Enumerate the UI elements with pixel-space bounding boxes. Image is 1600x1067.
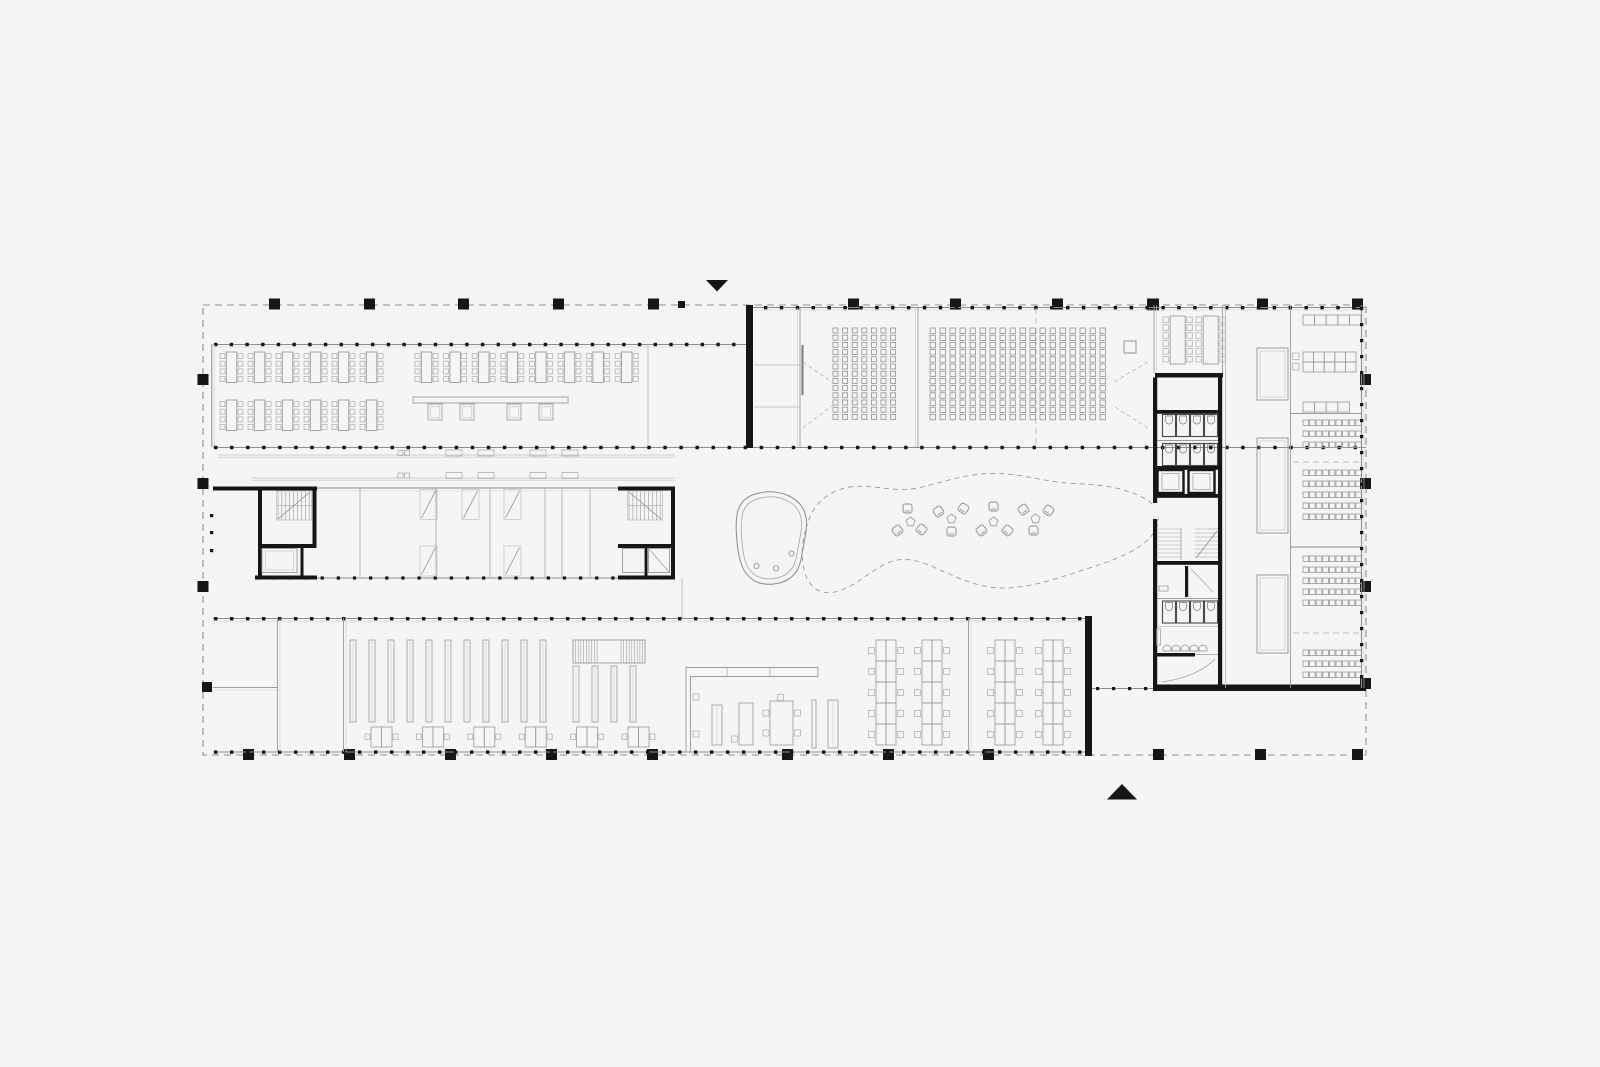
section-markers — [706, 280, 1137, 800]
auditoriums — [746, 305, 1148, 448]
reading-room — [220, 352, 638, 431]
atrium — [682, 474, 1158, 619]
right-wing — [1226, 305, 1365, 688]
facade-lines — [212, 306, 1366, 449]
bottom-wing — [202, 616, 1153, 756]
seminar-room — [1154, 305, 1225, 378]
mid-office-bar — [213, 487, 675, 580]
floor-plan-canvas — [0, 0, 1600, 1067]
sanitary-core — [1153, 378, 1367, 692]
gallery-edge — [218, 450, 675, 480]
floor-plan-svg — [0, 0, 1600, 1067]
